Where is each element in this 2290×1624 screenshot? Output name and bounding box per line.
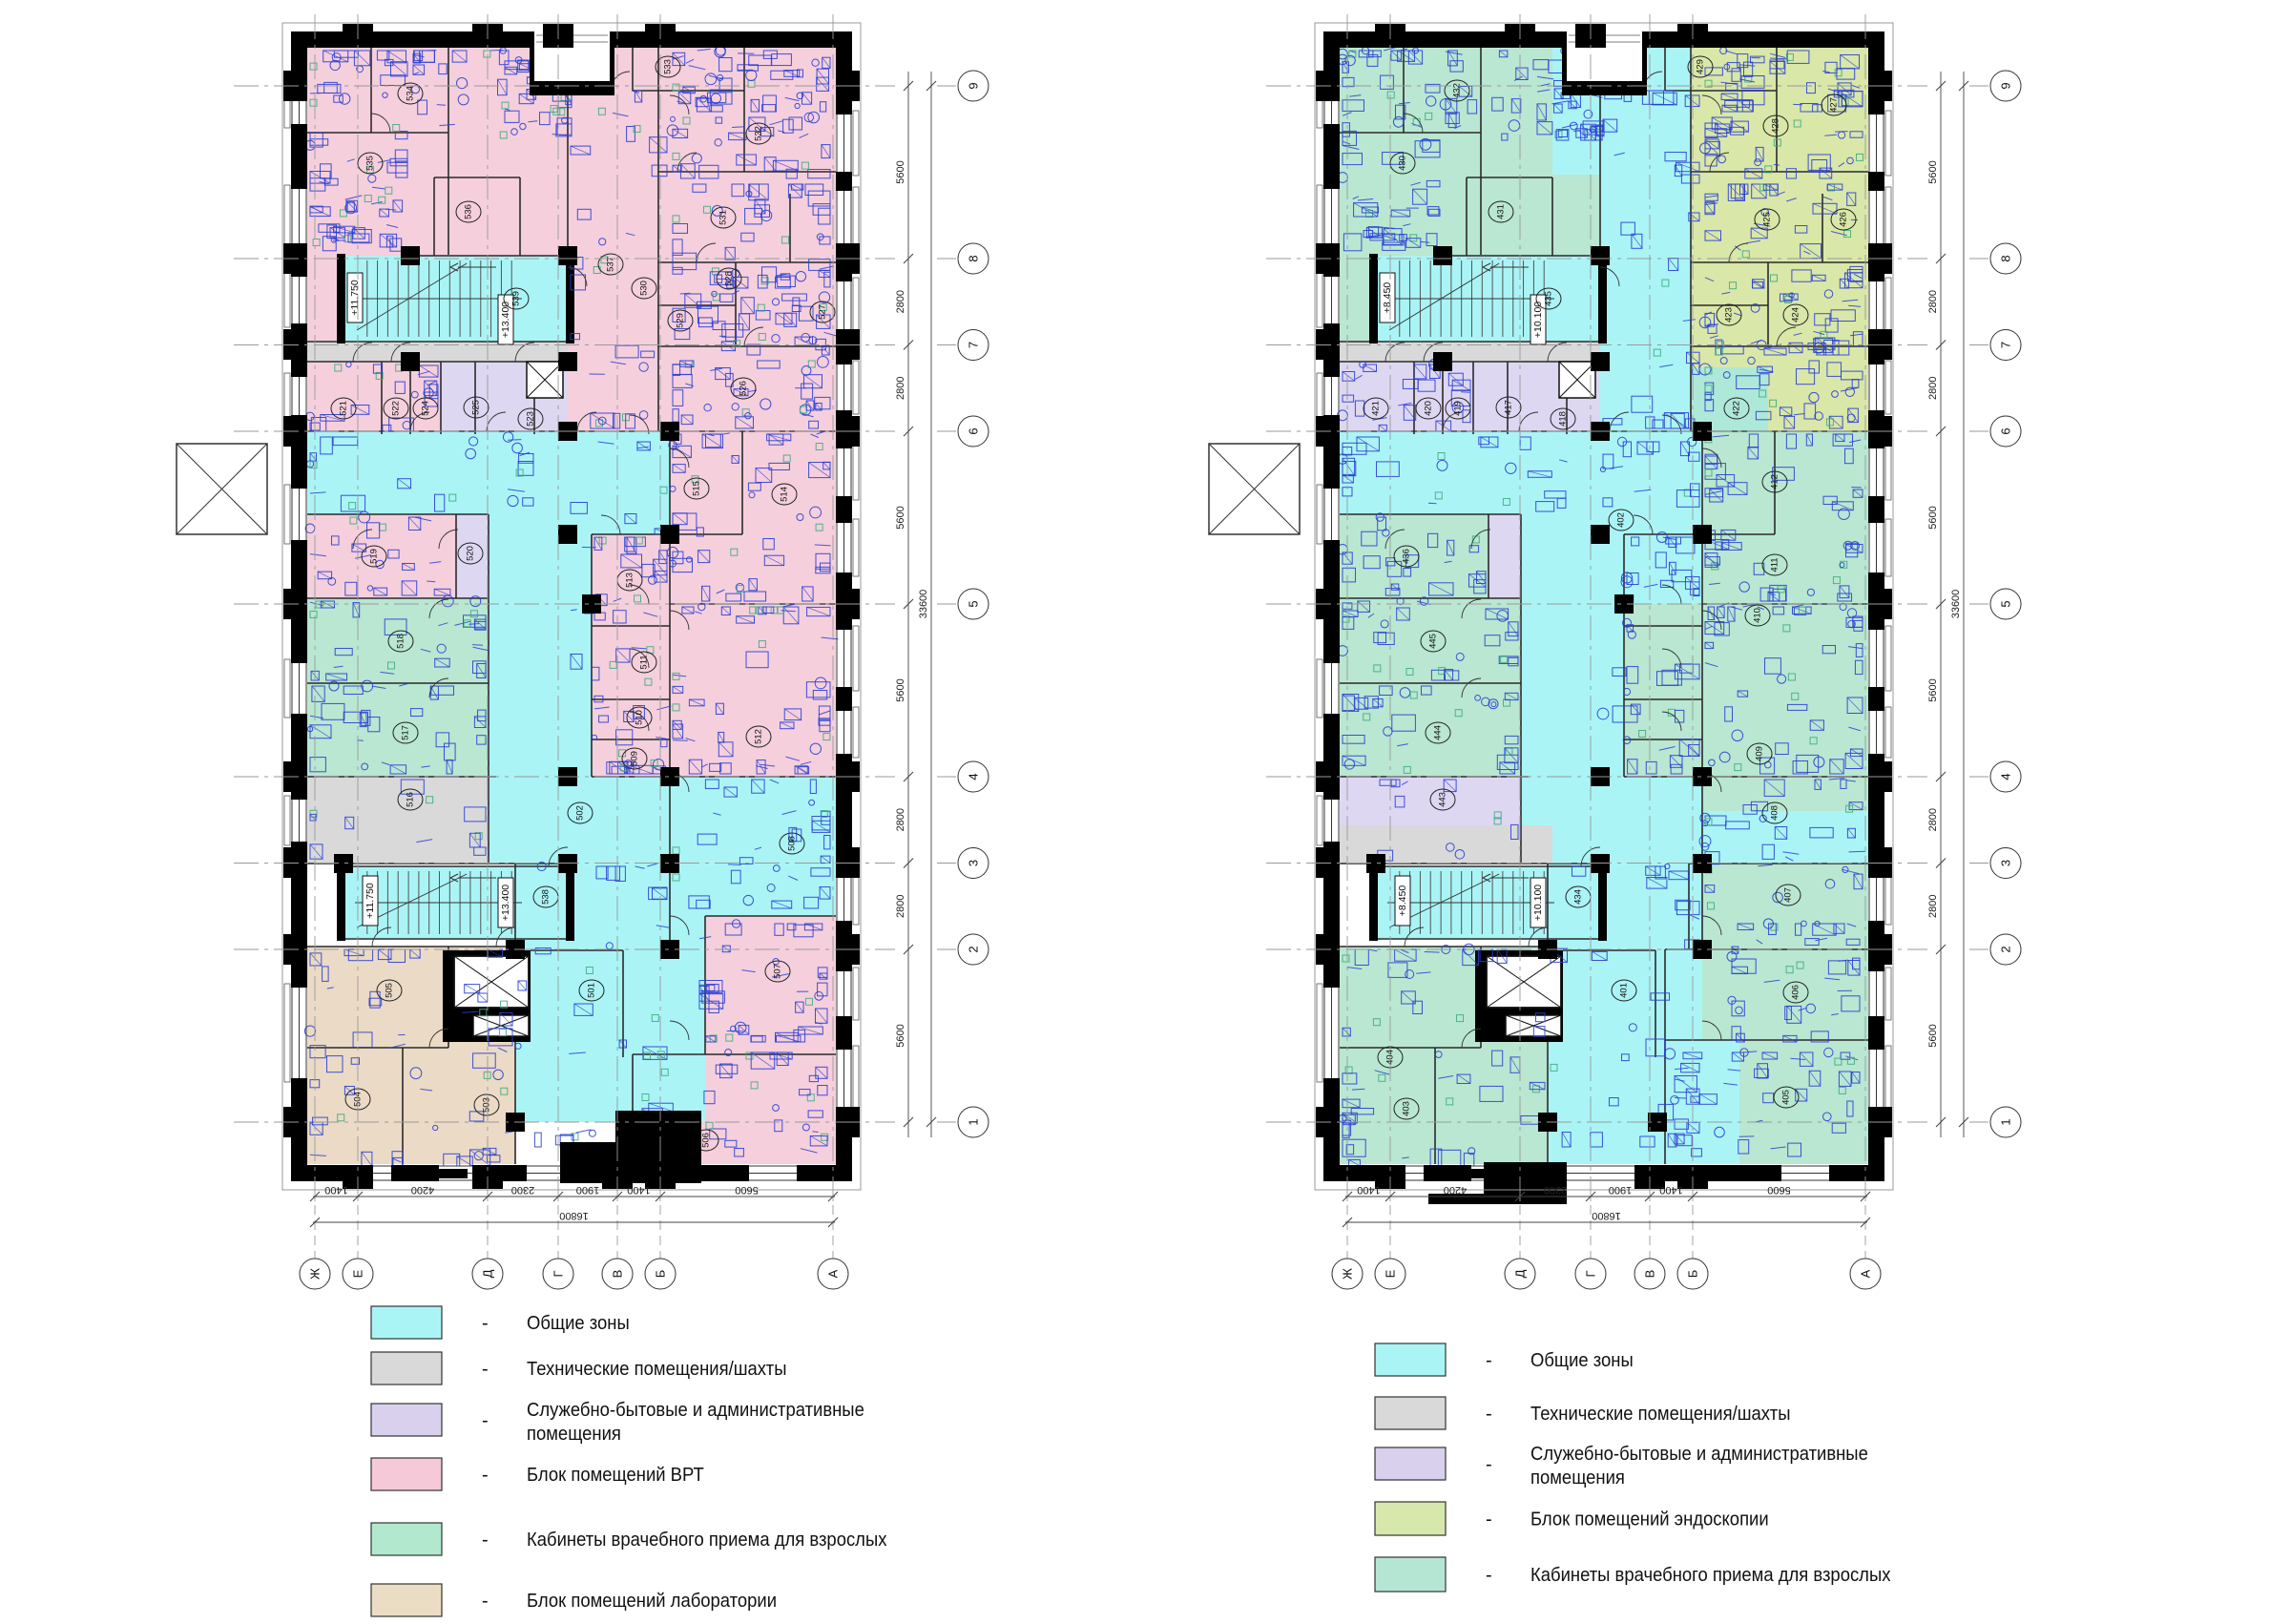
svg-text:534: 534 [406, 86, 416, 101]
svg-text:531: 531 [718, 210, 729, 225]
svg-text:423: 423 [1724, 307, 1735, 323]
svg-text:515: 515 [692, 481, 702, 496]
svg-text:Ж: Ж [1341, 1268, 1355, 1280]
svg-text:7: 7 [967, 342, 981, 348]
svg-text:432: 432 [1452, 83, 1463, 98]
svg-text:Общие зоны: Общие зоны [527, 1312, 630, 1334]
svg-text:425: 425 [1762, 212, 1773, 227]
svg-text:2300: 2300 [1544, 1184, 1567, 1196]
svg-text:+11.750: +11.750 [349, 280, 361, 316]
svg-text:538: 538 [541, 889, 552, 905]
svg-text:1900: 1900 [576, 1184, 599, 1196]
svg-text:Ж: Ж [308, 1268, 323, 1280]
svg-text:1900: 1900 [1609, 1184, 1632, 1196]
svg-text:-: - [1486, 1454, 1492, 1475]
svg-text:5600: 5600 [895, 506, 906, 529]
svg-text:33600: 33600 [918, 590, 929, 619]
svg-text:2800: 2800 [895, 377, 906, 400]
svg-text:529: 529 [676, 313, 686, 328]
svg-text:-: - [482, 1591, 489, 1612]
svg-text:5600: 5600 [735, 1184, 758, 1196]
svg-text:Блок помещений лаборатории: Блок помещений лаборатории [527, 1590, 777, 1612]
svg-text:506: 506 [701, 1133, 712, 1148]
svg-text:411: 411 [1770, 557, 1780, 572]
svg-text:6: 6 [967, 427, 981, 434]
svg-text:406: 406 [1791, 985, 1801, 1000]
svg-text:405: 405 [1781, 1090, 1792, 1105]
svg-text:436: 436 [1402, 549, 1412, 564]
svg-text:522: 522 [391, 401, 402, 416]
svg-text:3: 3 [1999, 860, 2013, 866]
svg-text:512: 512 [754, 729, 764, 744]
svg-text:Е: Е [351, 1269, 365, 1278]
svg-text:9: 9 [1999, 82, 2013, 89]
svg-text:4: 4 [1999, 773, 2013, 780]
svg-text:525: 525 [471, 400, 482, 415]
svg-text:421: 421 [1371, 401, 1382, 416]
svg-text:+11.750: +11.750 [364, 883, 376, 919]
svg-text:408: 408 [1770, 805, 1780, 821]
svg-text:502: 502 [575, 805, 586, 821]
svg-text:-: - [1486, 1565, 1492, 1586]
svg-text:+10.100: +10.100 [1532, 302, 1544, 338]
svg-text:523: 523 [526, 411, 536, 427]
svg-text:1: 1 [967, 1118, 981, 1125]
svg-text:В: В [611, 1270, 625, 1279]
svg-text:2800: 2800 [1927, 808, 1939, 831]
svg-text:430: 430 [1398, 156, 1408, 171]
svg-text:507: 507 [773, 964, 783, 979]
svg-text:6: 6 [1999, 427, 2013, 434]
svg-text:410: 410 [1753, 608, 1763, 623]
svg-text:А: А [826, 1269, 841, 1278]
svg-text:-: - [482, 1530, 489, 1551]
svg-text:501: 501 [587, 983, 597, 998]
svg-text:513: 513 [625, 573, 635, 588]
svg-text:2800: 2800 [1927, 895, 1939, 918]
svg-text:445: 445 [1428, 634, 1439, 649]
svg-text:8: 8 [967, 255, 981, 261]
svg-text:16800: 16800 [559, 1210, 589, 1221]
svg-text:-: - [482, 1465, 489, 1486]
svg-text:527: 527 [818, 304, 828, 320]
svg-text:+8.450: +8.450 [1382, 282, 1393, 314]
svg-text:+10.100: +10.100 [1532, 885, 1544, 921]
svg-text:508: 508 [787, 836, 798, 851]
svg-text:435: 435 [1544, 291, 1554, 306]
svg-text:4200: 4200 [411, 1184, 434, 1196]
svg-text:-: - [1486, 1404, 1492, 1425]
svg-text:431: 431 [1496, 204, 1507, 219]
svg-text:1: 1 [1999, 1118, 2013, 1125]
svg-text:+13.400: +13.400 [500, 302, 511, 338]
svg-text:2: 2 [1999, 946, 2013, 952]
svg-text:5600: 5600 [895, 160, 906, 183]
svg-text:401: 401 [1619, 983, 1630, 998]
svg-text:1400: 1400 [627, 1184, 650, 1196]
svg-text:2800: 2800 [1927, 290, 1939, 313]
svg-text:-: - [1486, 1350, 1492, 1371]
svg-text:А: А [1859, 1269, 1873, 1278]
svg-text:429: 429 [1696, 59, 1706, 74]
svg-text:5600: 5600 [1927, 506, 1939, 529]
svg-text:530: 530 [639, 281, 650, 296]
svg-text:Блок помещений эндоскопии: Блок помещений эндоскопии [1530, 1509, 1769, 1530]
svg-text:409: 409 [1755, 746, 1765, 761]
svg-text:517: 517 [401, 725, 411, 740]
svg-text:3: 3 [967, 860, 981, 866]
svg-text:428: 428 [1771, 118, 1781, 134]
svg-text:1400: 1400 [1357, 1184, 1380, 1196]
svg-text:407: 407 [1783, 887, 1794, 903]
svg-text:434: 434 [1573, 889, 1584, 905]
svg-text:412: 412 [1770, 474, 1780, 489]
svg-text:510: 510 [635, 710, 645, 725]
svg-text:2800: 2800 [895, 290, 906, 313]
svg-text:Б: Б [654, 1270, 668, 1279]
svg-text:Г: Г [1584, 1270, 1598, 1277]
svg-text:9: 9 [967, 82, 981, 89]
svg-text:Б: Б [1686, 1270, 1700, 1279]
svg-text:2: 2 [967, 946, 981, 952]
svg-text:521: 521 [339, 401, 349, 416]
svg-text:Г: Г [552, 1270, 566, 1277]
svg-text:2300: 2300 [511, 1184, 534, 1196]
svg-text:Кабинеты врачебного приема для: Кабинеты врачебного приема для взрослых [527, 1529, 887, 1551]
svg-text:7: 7 [1999, 342, 2013, 348]
svg-text:524: 524 [421, 401, 431, 416]
svg-text:5600: 5600 [895, 1024, 906, 1047]
svg-text:518: 518 [396, 634, 406, 649]
svg-text:-: - [482, 1313, 489, 1334]
svg-text:Служебно-бытовые и администрат: Служебно-бытовые и административные [527, 1399, 864, 1421]
svg-text:5: 5 [967, 600, 981, 607]
svg-text:509: 509 [630, 751, 640, 766]
svg-text:33600: 33600 [1950, 590, 1962, 619]
svg-text:помещения: помещения [527, 1423, 621, 1445]
svg-text:539: 539 [511, 291, 522, 306]
svg-text:5600: 5600 [895, 678, 906, 701]
svg-text:2800: 2800 [1927, 377, 1939, 400]
svg-text:помещения: помещения [1530, 1467, 1625, 1489]
svg-text:444: 444 [1433, 725, 1444, 740]
svg-text:532: 532 [754, 126, 764, 141]
svg-text:-: - [1486, 1509, 1492, 1530]
svg-text:427: 427 [1829, 97, 1840, 113]
svg-text:Общие зоны: Общие зоны [1530, 1349, 1634, 1371]
svg-text:Д: Д [481, 1269, 495, 1278]
svg-text:514: 514 [780, 487, 790, 502]
svg-text:4200: 4200 [1444, 1184, 1467, 1196]
svg-text:2800: 2800 [895, 895, 906, 918]
svg-text:В: В [1643, 1270, 1657, 1279]
svg-text:Д: Д [1513, 1269, 1528, 1278]
svg-text:5600: 5600 [1927, 678, 1939, 701]
svg-text:419: 419 [1453, 401, 1464, 416]
svg-text:417: 417 [1504, 400, 1514, 415]
svg-text:Е: Е [1384, 1269, 1398, 1278]
svg-text:424: 424 [1791, 307, 1801, 323]
svg-text:1400: 1400 [324, 1184, 347, 1196]
svg-text:505: 505 [385, 983, 395, 998]
svg-text:520: 520 [466, 546, 476, 561]
svg-text:511: 511 [639, 655, 650, 669]
svg-text:422: 422 [1732, 401, 1742, 416]
svg-text:403: 403 [1402, 1101, 1412, 1116]
svg-text:Служебно-бытовые и администрат: Служебно-бытовые и административные [1530, 1443, 1868, 1465]
svg-text:-: - [482, 1410, 489, 1431]
svg-text:516: 516 [406, 792, 416, 807]
svg-text:5600: 5600 [1927, 160, 1939, 183]
svg-text:Кабинеты врачебного приема для: Кабинеты врачебного приема для взрослых [1530, 1564, 1891, 1586]
svg-text:535: 535 [365, 156, 376, 171]
svg-text:Технические помещения/шахты: Технические помещения/шахты [527, 1358, 786, 1380]
svg-text:418: 418 [1558, 411, 1569, 427]
svg-text:426: 426 [1839, 212, 1849, 227]
svg-text:Блок помещений ВРТ: Блок помещений ВРТ [527, 1464, 704, 1486]
svg-text:5600: 5600 [1767, 1184, 1790, 1196]
svg-text:+13.400: +13.400 [500, 885, 511, 921]
svg-text:420: 420 [1424, 401, 1434, 416]
svg-text:Технические помещения/шахты: Технические помещения/шахты [1530, 1403, 1790, 1425]
svg-text:526: 526 [739, 381, 749, 396]
svg-text:402: 402 [1616, 512, 1627, 528]
svg-text:-: - [482, 1359, 489, 1380]
svg-text:443: 443 [1438, 792, 1448, 807]
svg-text:5600: 5600 [1927, 1024, 1939, 1047]
svg-text:533: 533 [663, 59, 674, 74]
svg-text:8: 8 [1999, 255, 2013, 261]
svg-text:5: 5 [1999, 600, 2013, 607]
svg-text:+8.450: +8.450 [1397, 885, 1408, 917]
svg-text:1400: 1400 [1659, 1184, 1682, 1196]
svg-text:519: 519 [369, 549, 380, 564]
svg-text:4: 4 [967, 773, 981, 780]
svg-text:2800: 2800 [895, 808, 906, 831]
svg-text:16800: 16800 [1592, 1210, 1621, 1221]
svg-text:528: 528 [724, 271, 735, 286]
svg-text:536: 536 [464, 204, 474, 219]
svg-text:503: 503 [482, 1097, 492, 1113]
